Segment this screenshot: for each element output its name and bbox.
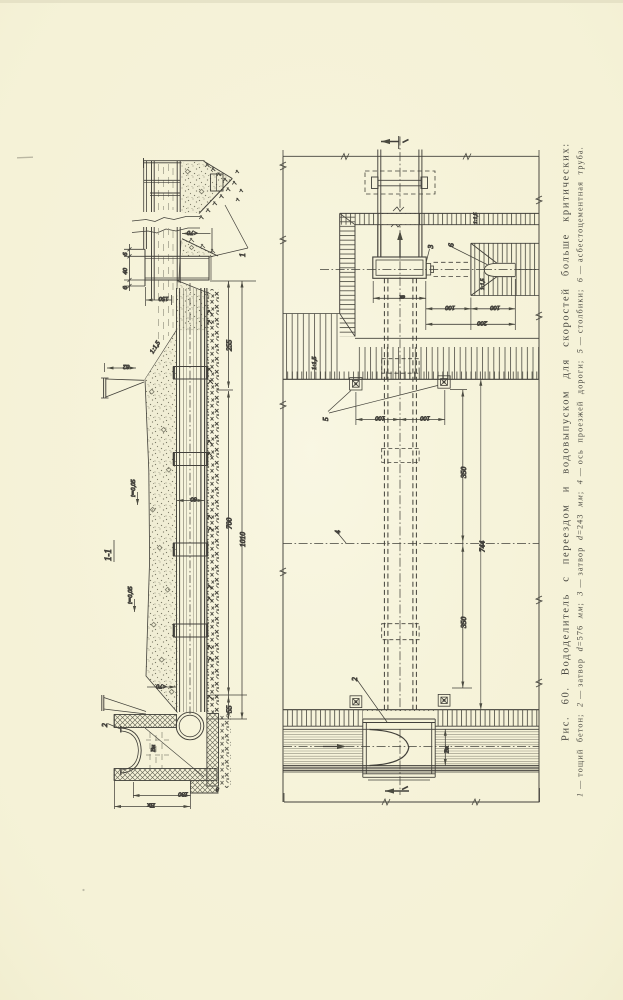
- svg-text:100: 100: [490, 304, 501, 311]
- svg-text:<70: <70: [155, 682, 167, 689]
- svg-text:1:1,5: 1:1,5: [480, 278, 486, 290]
- svg-text:1-1: 1-1: [103, 549, 113, 561]
- svg-text:350: 350: [459, 467, 468, 480]
- svg-text:вк: вк: [399, 294, 405, 300]
- svg-text:1: 1: [238, 253, 247, 257]
- svg-text:130: 130: [178, 791, 189, 798]
- svg-text:60: 60: [190, 496, 197, 503]
- svg-text:700: 700: [225, 518, 234, 530]
- svg-text:744: 744: [478, 541, 487, 553]
- svg-text:8: 8: [216, 786, 219, 792]
- svg-text:1 — тощий бетон; 2 — затвор d=: 1 — тощий бетон; 2 — затвор d=576 мм; 3 …: [576, 146, 585, 797]
- svg-text:6: 6: [447, 243, 456, 247]
- svg-text:3: 3: [426, 245, 435, 250]
- svg-text:350: 350: [459, 617, 468, 630]
- svg-text:1:1,5: 1:1,5: [311, 356, 318, 370]
- svg-text:255: 255: [225, 340, 234, 352]
- svg-text:4: 4: [333, 530, 342, 534]
- svg-text:5: 5: [321, 417, 330, 421]
- svg-text:1:1,5: 1:1,5: [473, 212, 479, 224]
- svg-text:1010: 1010: [238, 532, 247, 547]
- svg-text:100: 100: [375, 415, 386, 422]
- svg-text:Bк: Bк: [444, 745, 451, 753]
- svg-text:55: 55: [225, 705, 234, 713]
- svg-text:i=0,05: i=0,05: [130, 479, 137, 497]
- svg-text:200: 200: [477, 320, 488, 327]
- svg-text:40: 40: [122, 267, 129, 274]
- svg-text:i=0,05: i=0,05: [127, 586, 134, 604]
- svg-text:82: 82: [122, 363, 129, 370]
- svg-text:100: 100: [420, 415, 431, 422]
- svg-text:Hк: Hк: [146, 802, 156, 809]
- svg-text:100: 100: [445, 304, 456, 311]
- svg-text:Рис. 60. Вододелитель с переез: Рис. 60. Вододелитель с переездом и водо…: [561, 142, 572, 741]
- svg-text:<70: <70: [186, 229, 198, 236]
- svg-text:150: 150: [158, 295, 169, 302]
- svg-text:Bн: Bн: [150, 745, 157, 752]
